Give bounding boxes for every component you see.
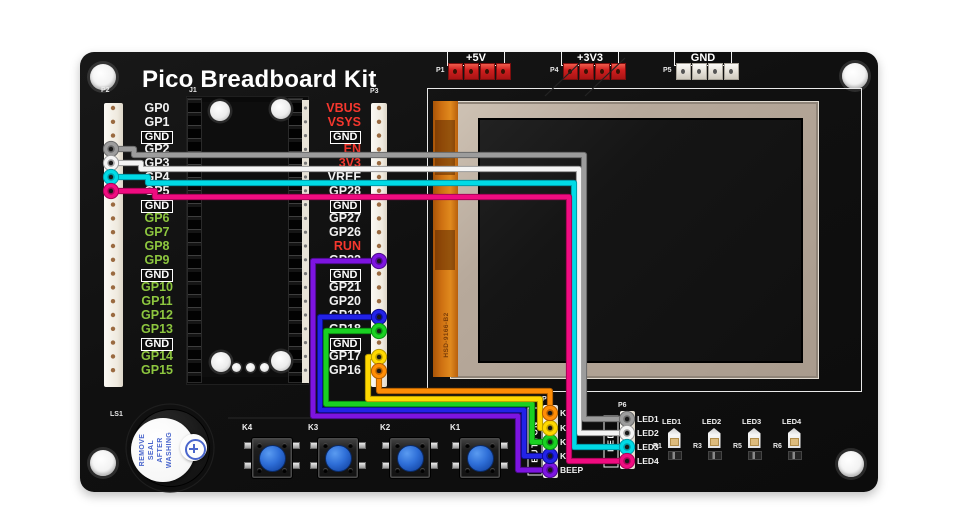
header-p3-id: P3 <box>370 88 379 95</box>
lcd-display <box>478 118 803 363</box>
resistor-r6-chip <box>788 451 802 460</box>
p2-gnd-label: GND <box>127 129 187 143</box>
power-header-gnd-pins <box>676 63 739 80</box>
flex-patch-1 <box>435 120 455 175</box>
p2-gp8-label: GP8 <box>127 239 187 253</box>
p3-gnd-label: GND <box>299 336 361 350</box>
power-header-3v3-pins <box>563 63 626 80</box>
p2-gnd-label: GND <box>127 336 187 350</box>
resistor-r5-chip <box>748 451 762 460</box>
p2-gnd-label: GND <box>127 198 187 212</box>
p3-gp21-label: GP21 <box>299 280 361 294</box>
p3-gp28-label: GP28 <box>299 184 361 198</box>
button-rivet <box>348 443 353 448</box>
power-header-3v3-id: P4 <box>550 67 559 74</box>
p3-vsys-label: VSYS <box>299 115 361 129</box>
p2-gp3-label: GP3 <box>127 156 187 170</box>
screw-hole-bottom-right <box>838 451 864 477</box>
p3-gp16-label: GP16 <box>299 363 361 377</box>
seal-line-4: WASHING <box>165 420 174 480</box>
p3-gp22-label: GP22 <box>299 253 361 267</box>
lcd-flex-part-number: HSD-9166-B2 <box>443 307 453 363</box>
power-pin <box>496 63 511 80</box>
p2-gp13-label: GP13 <box>127 322 187 336</box>
debug-hole-1 <box>232 363 241 372</box>
socket-hole-top-left <box>210 101 230 121</box>
pin-hole <box>453 69 457 74</box>
power-pin <box>579 63 594 80</box>
p6-pin-led4-label: LED4 <box>637 456 659 466</box>
pin-hole <box>697 69 701 74</box>
debug-hole-3 <box>260 363 269 372</box>
led1-chip <box>670 438 679 446</box>
button-rivet <box>323 443 328 448</box>
button-rivet <box>257 468 262 473</box>
resistor-r3-chip <box>708 451 722 460</box>
p2-gp14-label: GP14 <box>127 349 187 363</box>
led1-label: LED1 <box>662 417 681 426</box>
button-k3-label: K3 <box>308 423 318 432</box>
button-cap-k1 <box>467 445 494 472</box>
p3-vbus-label: VBUS <box>299 101 361 115</box>
p6-pin-led1-label: LED1 <box>637 414 659 424</box>
pin-hole <box>469 69 473 74</box>
p3-gp19-label: GP19 <box>299 308 361 322</box>
button-cap-k2 <box>397 445 424 472</box>
button-rivet <box>323 468 328 473</box>
power-header-5v-pins <box>448 63 511 80</box>
pin-hole <box>713 69 717 74</box>
power-pin <box>708 63 723 80</box>
power-header-gnd-id: P5 <box>663 67 672 74</box>
p3-en-label: EN <box>299 142 361 156</box>
p6-pin-led2-label: LED2 <box>637 428 659 438</box>
led4-label: LED4 <box>782 417 801 426</box>
resistor-r1-chip <box>668 451 682 460</box>
p2-gp12-label: GP12 <box>127 308 187 322</box>
button-cap-k4 <box>259 445 286 472</box>
led4-chip <box>790 438 799 446</box>
p2-gp10-label: GP10 <box>127 280 187 294</box>
flex-patch-2 <box>435 230 455 270</box>
screw-hole-top-right <box>842 63 868 89</box>
socket-inner-panel <box>202 102 288 377</box>
power-pin <box>480 63 495 80</box>
buzzer-seal-text: REMOVE SEAL AFTER WASHING <box>138 420 178 480</box>
button-rivet <box>395 443 400 448</box>
p3-run-label: RUN <box>299 239 361 253</box>
p3-gnd-label: GND <box>299 129 361 143</box>
seal-cross-icon <box>185 439 206 460</box>
power-pin <box>724 63 739 80</box>
p3-3v3-label: 3V3 <box>299 156 361 170</box>
p3-gnd-label: GND <box>299 267 361 281</box>
p2-gp11-label: GP11 <box>127 294 187 308</box>
socket-hole-bottom-left <box>211 352 231 372</box>
button-rivet <box>395 468 400 473</box>
p3-gp26-label: GP26 <box>299 225 361 239</box>
p3-gp20-label: GP20 <box>299 294 361 308</box>
pin-hole <box>501 69 505 74</box>
p2-gnd-label: GND <box>127 267 187 281</box>
header-p2-id: P2 <box>101 87 110 94</box>
pin-hole <box>568 69 572 74</box>
button-header-box: BUTTON <box>528 408 543 476</box>
led-header-box: LED <box>604 416 619 468</box>
seal-line-3: AFTER <box>156 420 165 480</box>
screw-hole-bottom-left <box>90 450 116 476</box>
p2-gp15-label: GP15 <box>127 363 187 377</box>
p2-gp2-label: GP2 <box>127 142 187 156</box>
button-rivet <box>490 468 495 473</box>
button-k2-label: K2 <box>380 423 390 432</box>
power-pin <box>611 63 626 80</box>
pin-hole <box>584 69 588 74</box>
pin-hole <box>681 69 685 74</box>
power-pin <box>595 63 610 80</box>
pin-hole <box>729 69 733 74</box>
header-p3-strip <box>371 103 387 387</box>
resistor-r6-label: R6 <box>773 443 782 450</box>
button-rivet <box>490 443 495 448</box>
seal-line-2: SEAL <box>147 420 156 480</box>
socket-column-left <box>187 98 202 383</box>
button-rivet <box>465 468 470 473</box>
p3-gp27-label: GP27 <box>299 211 361 225</box>
power-pin <box>563 63 578 80</box>
header-p6-strip <box>620 411 635 469</box>
pin-hole <box>616 69 620 74</box>
p2-gp1-label: GP1 <box>127 115 187 129</box>
p2-gp7-label: GP7 <box>127 225 187 239</box>
header-p7-id: P7 <box>542 396 551 403</box>
resistor-r3-label: R3 <box>693 443 702 450</box>
button-rivet <box>465 443 470 448</box>
power-pin <box>692 63 707 80</box>
seal-line-1: REMOVE <box>138 420 147 480</box>
led3-chip <box>750 438 759 446</box>
socket-hole-top-right <box>271 99 291 119</box>
pico-breadboard-kit-photo: Pico Breadboard Kit +5V P1 +3V3 P4 GND P… <box>0 0 960 530</box>
header-p6-id: P6 <box>618 402 627 409</box>
p3-gp18-label: GP18 <box>299 322 361 336</box>
button-rivet <box>348 468 353 473</box>
led3-label: LED3 <box>742 417 761 426</box>
p7-pin-k2-label: K2 <box>560 423 571 433</box>
button-rivet <box>282 443 287 448</box>
p2-gp9-label: GP9 <box>127 253 187 267</box>
p7-pin-k1-label: K1 <box>560 408 571 418</box>
p3-gnd-label: GND <box>299 198 361 212</box>
power-pin <box>464 63 479 80</box>
button-cap-k3 <box>325 445 352 472</box>
button-rivet <box>420 468 425 473</box>
p7-pin-k4-label: K4 <box>560 451 571 461</box>
led2-label: LED2 <box>702 417 721 426</box>
debug-hole-2 <box>246 363 255 372</box>
button-rivet <box>282 468 287 473</box>
resistor-r5-label: R5 <box>733 443 742 450</box>
power-header-5v-id: P1 <box>436 67 445 74</box>
board-title: Pico Breadboard Kit <box>142 66 377 94</box>
power-pin <box>676 63 691 80</box>
p3-vref-label: VREF <box>299 170 361 184</box>
p7-pin-k3-label: K3 <box>560 437 571 447</box>
power-pin <box>448 63 463 80</box>
pin-hole <box>600 69 604 74</box>
header-p2-strip <box>104 103 123 387</box>
resistor-r1-label: R1 <box>653 443 662 450</box>
header-p7-strip <box>543 405 558 478</box>
button-k4-label: K4 <box>242 423 252 432</box>
p7-pin-beep-label: BEEP <box>560 465 583 475</box>
p2-gp5-label: GP5 <box>127 184 187 198</box>
buzzer-id: LS1 <box>110 411 123 418</box>
button-rivet <box>257 443 262 448</box>
led2-chip <box>710 438 719 446</box>
p2-gp0-label: GP0 <box>127 101 187 115</box>
socket-hole-bottom-right <box>271 351 291 371</box>
socket-j1-id: J1 <box>189 87 197 94</box>
p2-gp6-label: GP6 <box>127 211 187 225</box>
button-rivet <box>420 443 425 448</box>
p2-gp4-label: GP4 <box>127 170 187 184</box>
button-k1-label: K1 <box>450 423 460 432</box>
p3-gp17-label: GP17 <box>299 349 361 363</box>
pin-hole <box>485 69 489 74</box>
